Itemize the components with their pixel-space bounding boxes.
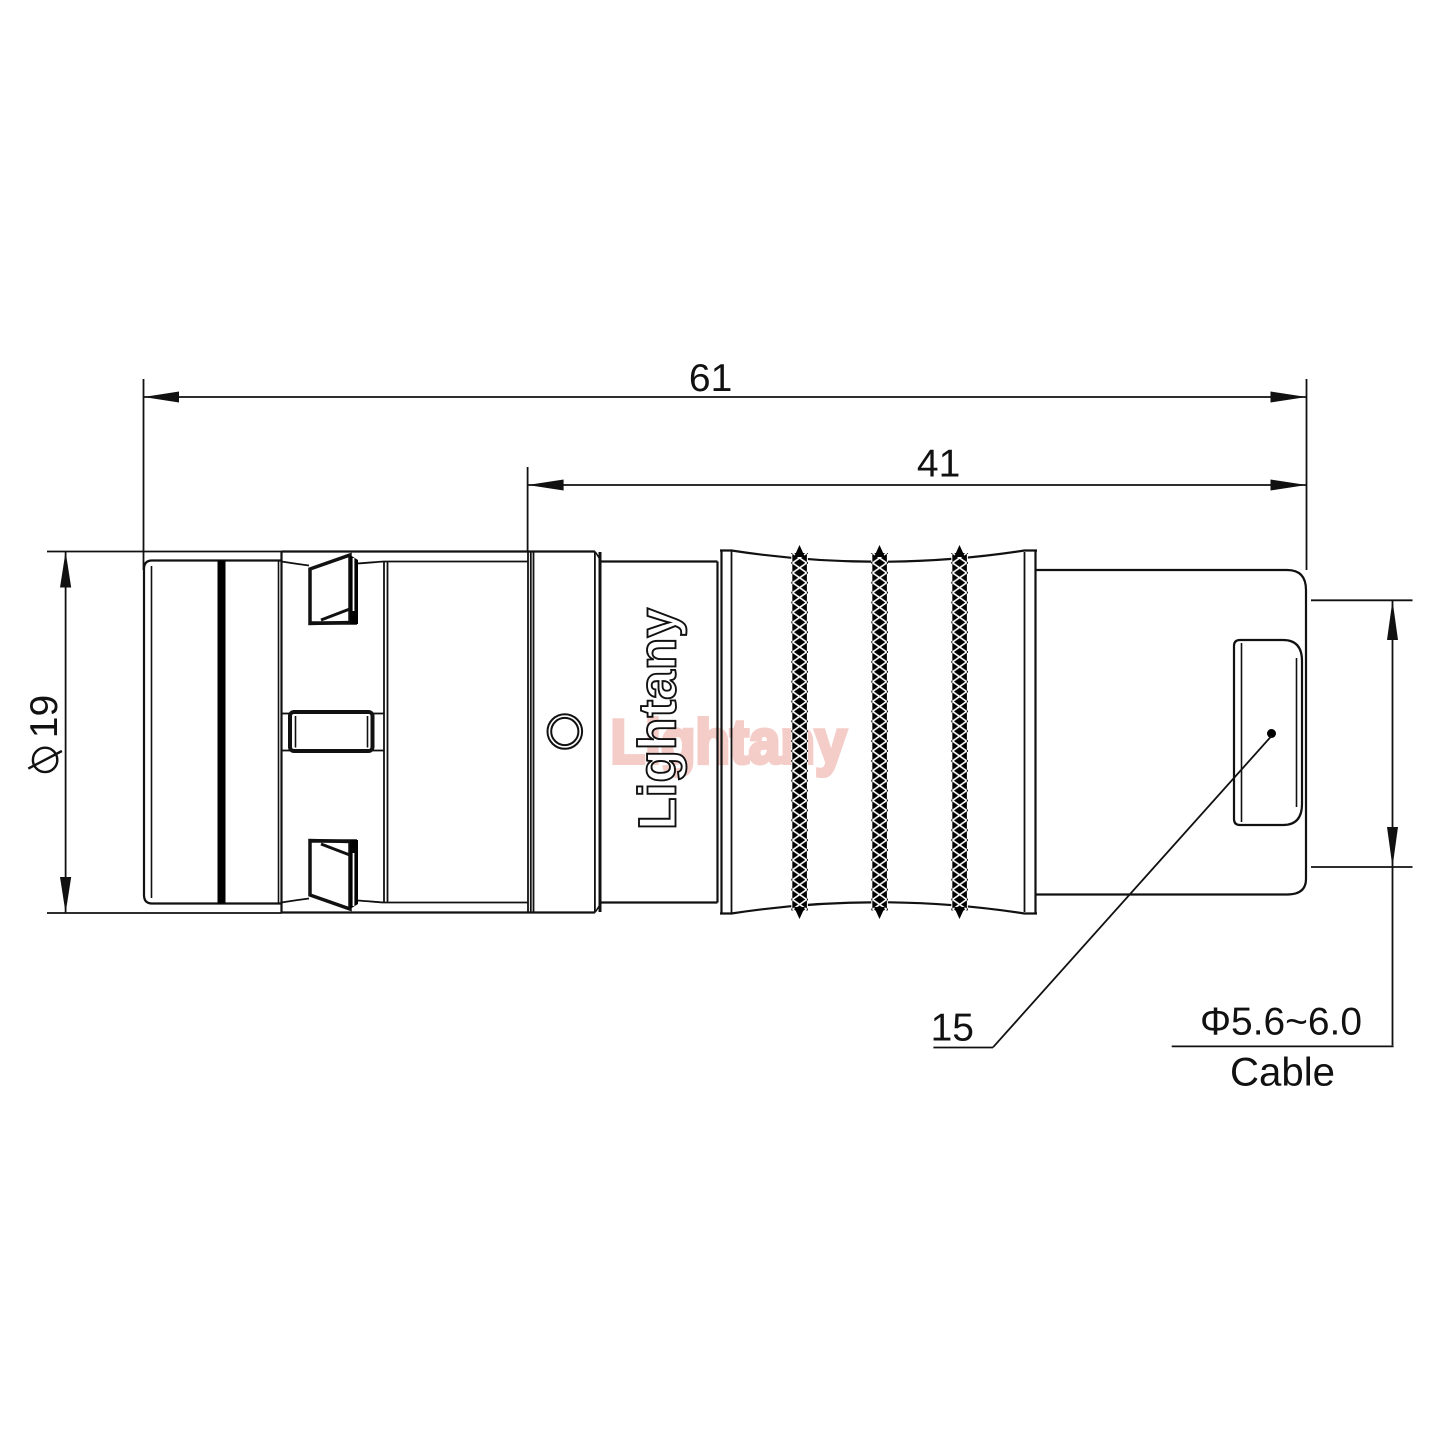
svg-text:41: 41 [917, 443, 960, 486]
svg-text:Lightany: Lightany [629, 607, 688, 830]
svg-text:Cable: Cable [1230, 1050, 1335, 1094]
svg-text:Φ5.6~6.0: Φ5.6~6.0 [1200, 1001, 1362, 1044]
svg-text:19: 19 [23, 695, 66, 738]
svg-text:15: 15 [931, 1007, 974, 1050]
svg-text:61: 61 [689, 357, 732, 400]
